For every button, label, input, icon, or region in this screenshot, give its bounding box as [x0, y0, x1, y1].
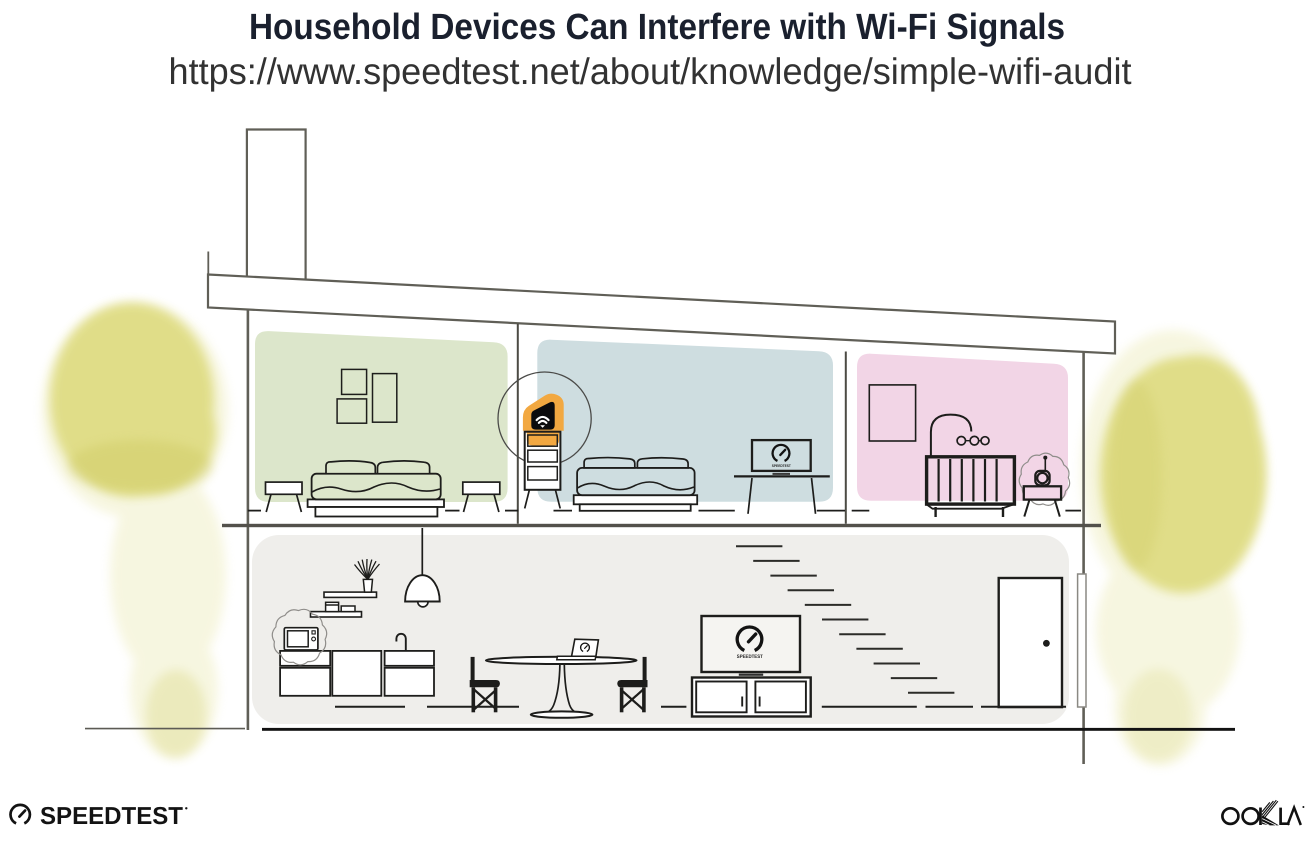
svg-text:Household Devices Can Interfer: Household Devices Can Interfere with Wi-… — [249, 6, 1065, 47]
svg-text:SPEEDTEST: SPEEDTEST — [737, 654, 763, 660]
svg-text:SPEEDTEST: SPEEDTEST — [40, 803, 183, 830]
svg-text:SPEEDTEST: SPEEDTEST — [772, 464, 792, 468]
svg-text:https://www.speedtest.net/abou: https://www.speedtest.net/about/knowledg… — [169, 51, 1133, 92]
